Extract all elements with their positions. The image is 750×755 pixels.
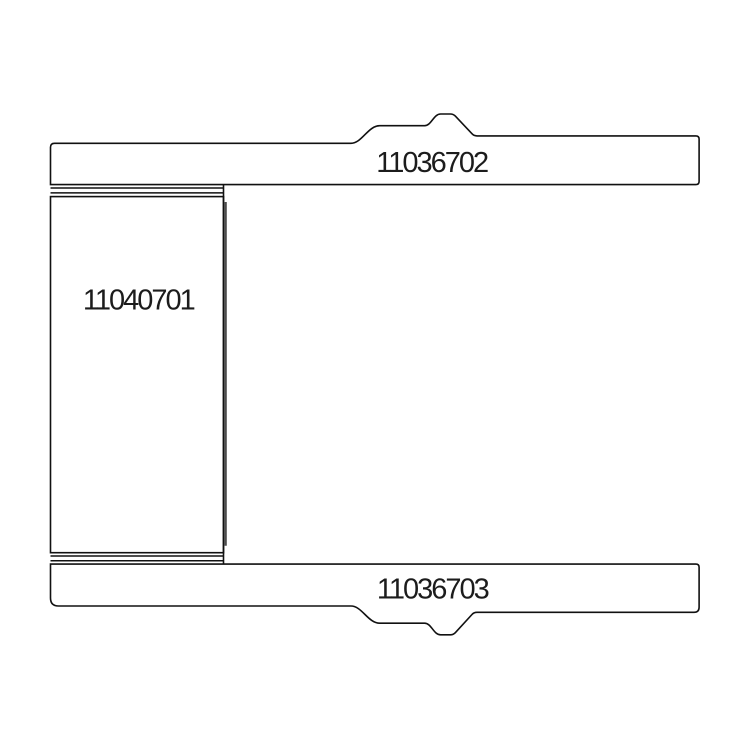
svg-text:11040701: 11040701 (83, 285, 195, 317)
svg-text:11036702: 11036702 (376, 147, 488, 179)
svg-text:11036703: 11036703 (377, 574, 489, 606)
